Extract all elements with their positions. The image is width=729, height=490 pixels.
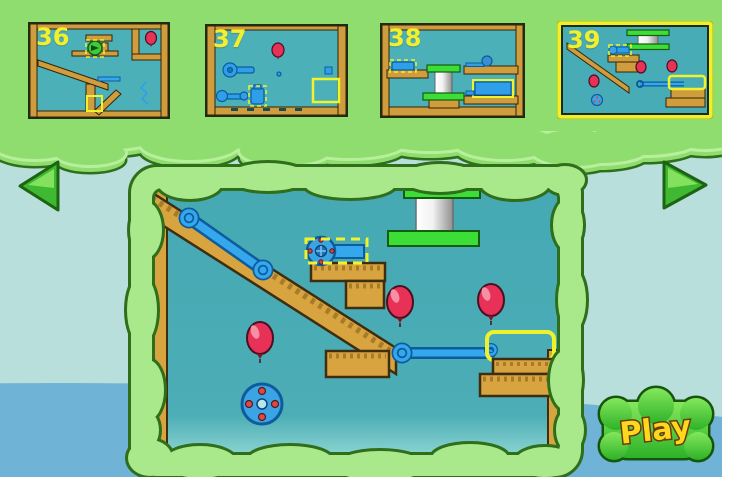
level-select-screen: 36 (0, 0, 722, 477)
spiked-wheel-icon (592, 95, 603, 106)
next-level-button[interactable] (656, 158, 708, 210)
level-thumbnail-37[interactable]: 37 (205, 24, 348, 117)
level-thumbnail-39-selected[interactable]: 39 (557, 21, 713, 119)
play-button[interactable]: Play (586, 384, 722, 477)
level-37-art (205, 24, 348, 117)
play-label: Play (618, 409, 693, 451)
arrow-right-icon (656, 158, 708, 210)
prev-level-button[interactable] (16, 160, 64, 212)
arrow-left-icon (16, 160, 64, 212)
play-button-art: Play (586, 384, 722, 477)
level-36-art (28, 22, 170, 119)
level-39-art (557, 21, 713, 119)
level-thumbnail-38[interactable]: 38 (380, 23, 525, 118)
level-38-art (380, 23, 525, 118)
level-thumbnail-36[interactable]: 36 (28, 22, 170, 119)
